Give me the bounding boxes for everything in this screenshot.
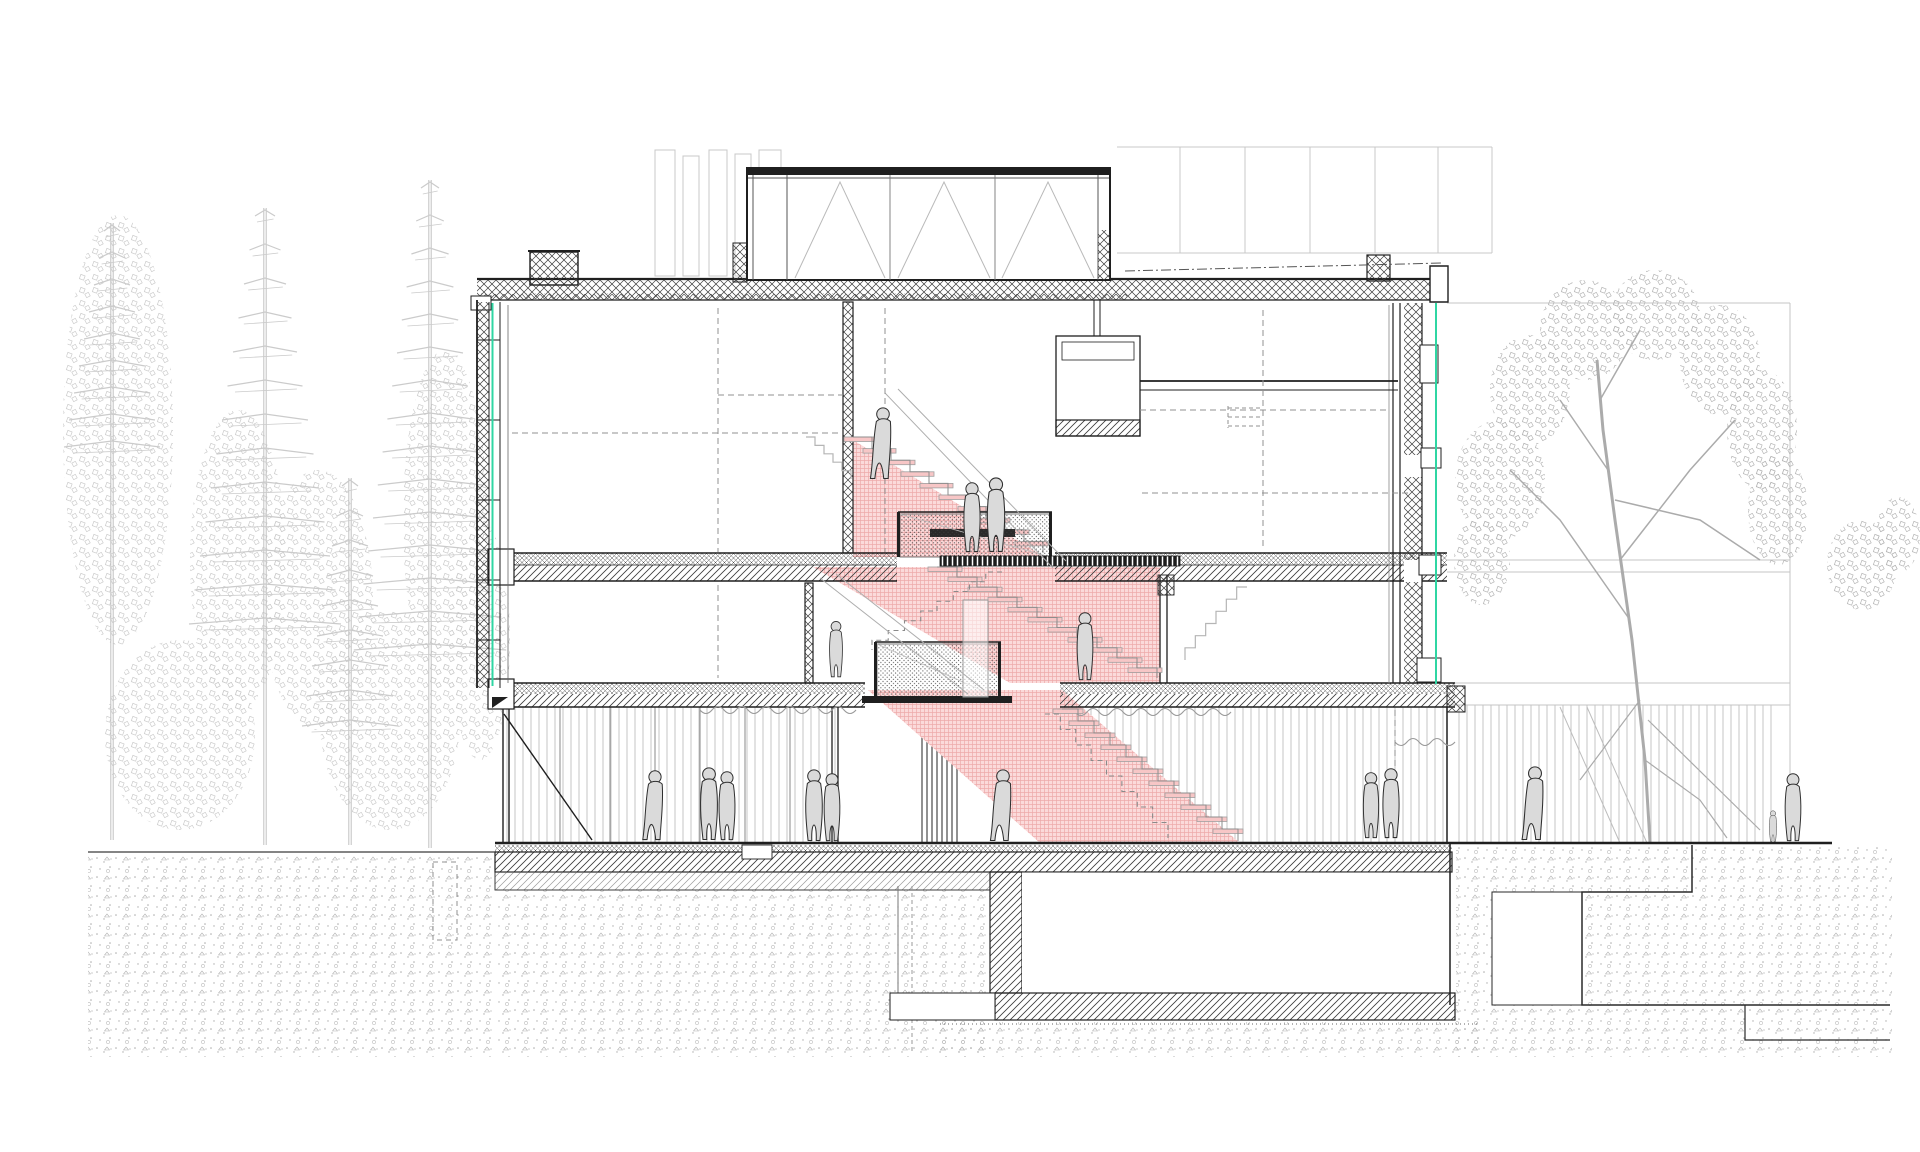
basement-wall <box>990 872 1022 993</box>
earth-and-basement <box>88 843 1892 1057</box>
grating-strip <box>940 556 1180 566</box>
basement-room <box>1022 872 1450 993</box>
glass-door-panel <box>963 600 988 697</box>
monitor-left-upstand <box>733 243 747 282</box>
elevator-box <box>1056 300 1140 436</box>
basement-footing <box>890 993 995 1020</box>
person-silhouette <box>829 621 842 676</box>
parapet-left <box>530 252 578 285</box>
earth-hatch-below-floor <box>940 1022 1480 1057</box>
crown-blob <box>105 640 255 830</box>
parapet-right <box>1367 255 1390 281</box>
leaf-cluster <box>1748 455 1808 565</box>
slab-edge-cap-right <box>1447 686 1465 712</box>
leaf-cluster <box>1876 497 1920 573</box>
earth-hatch-left <box>88 854 495 1057</box>
left-conifer-forest <box>63 180 510 848</box>
crown-blob <box>63 215 173 645</box>
stair-wall-upper <box>843 302 853 553</box>
leaf-cluster <box>1454 515 1510 605</box>
basement-right-room <box>1492 892 1582 1005</box>
crown-blob <box>320 610 460 830</box>
roof-edge-cap <box>1430 266 1448 302</box>
landing-edge-beam <box>862 696 1012 703</box>
ground-slab-lower-layer <box>495 872 990 890</box>
person-silhouette <box>1785 774 1801 841</box>
leaf-clusters <box>1454 270 1920 610</box>
ground-slab-concrete <box>495 852 1452 872</box>
background-stair-flight <box>1185 587 1247 660</box>
drawing-canvas: Architectural building cross-section dra… <box>0 0 1920 1152</box>
earth-hatch-center <box>497 890 990 1057</box>
clerestory-monitor <box>747 168 1110 280</box>
roof-membrane-dashline <box>1125 263 1443 271</box>
basement-floor-slab <box>995 993 1455 1020</box>
monitor-right-jamb <box>1098 230 1110 280</box>
roof-deck-scallop <box>479 293 1127 299</box>
timber-clad-wall-left <box>503 707 838 843</box>
upper-bridge <box>1140 381 1398 390</box>
architectural-section-drawing: Architectural building cross-section dra… <box>0 0 1920 1152</box>
ground-slab-topping <box>495 845 1452 852</box>
slab-recess <box>742 845 772 859</box>
stair-wall-middle <box>805 583 813 683</box>
monitor-fascia <box>747 168 1110 175</box>
